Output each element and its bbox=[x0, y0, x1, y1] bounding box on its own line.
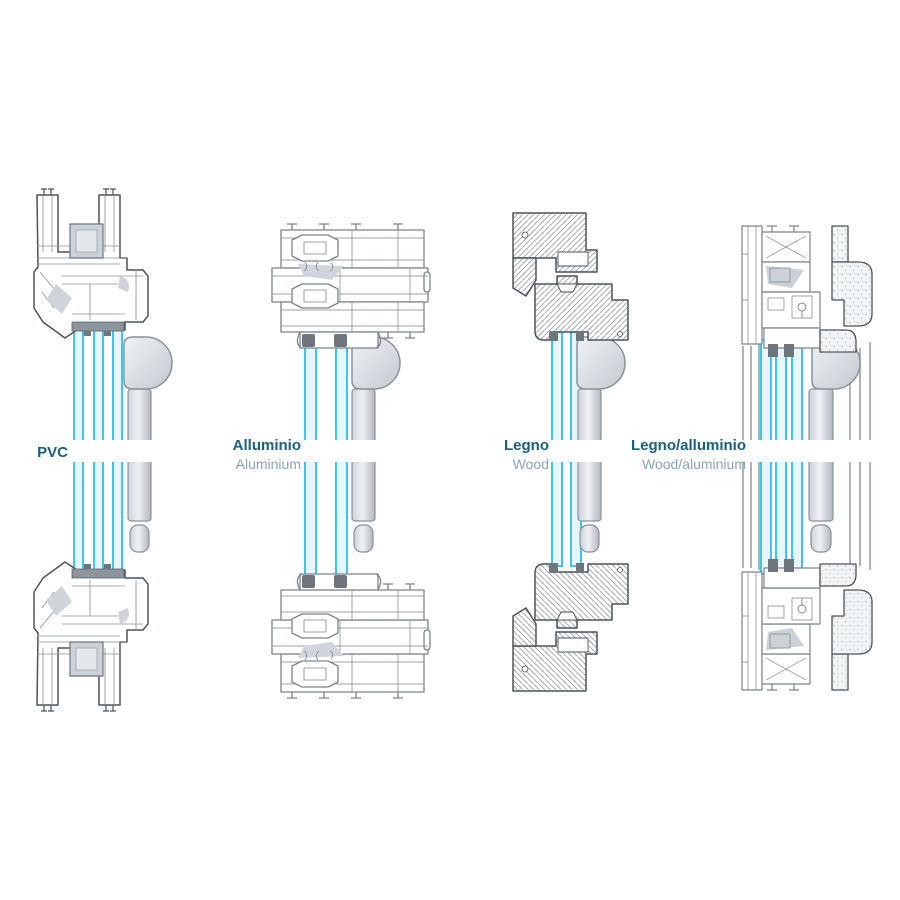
label-wood-aluminium: Legno/alluminio Wood/aluminium bbox=[600, 437, 746, 473]
label-aluminium-main: Alluminio bbox=[180, 437, 301, 455]
label-pvc: PVC bbox=[8, 444, 68, 462]
label-wood-main: Legno bbox=[440, 437, 549, 455]
label-aluminium: Alluminio Aluminium bbox=[180, 437, 301, 473]
label-wood: Legno Wood bbox=[440, 437, 549, 473]
label-pvc-main: PVC bbox=[8, 444, 68, 462]
section-wood-aluminium bbox=[735, 226, 883, 690]
label-wood-aluminium-main: Legno/alluminio bbox=[600, 437, 746, 455]
label-wood-aluminium-sub: Wood/aluminium bbox=[600, 455, 746, 473]
label-aluminium-sub: Aluminium bbox=[180, 455, 301, 473]
label-wood-sub: Wood bbox=[440, 455, 549, 473]
window-sections-figure: PVC Alluminio Aluminium Legno Wood Legno… bbox=[0, 0, 900, 900]
